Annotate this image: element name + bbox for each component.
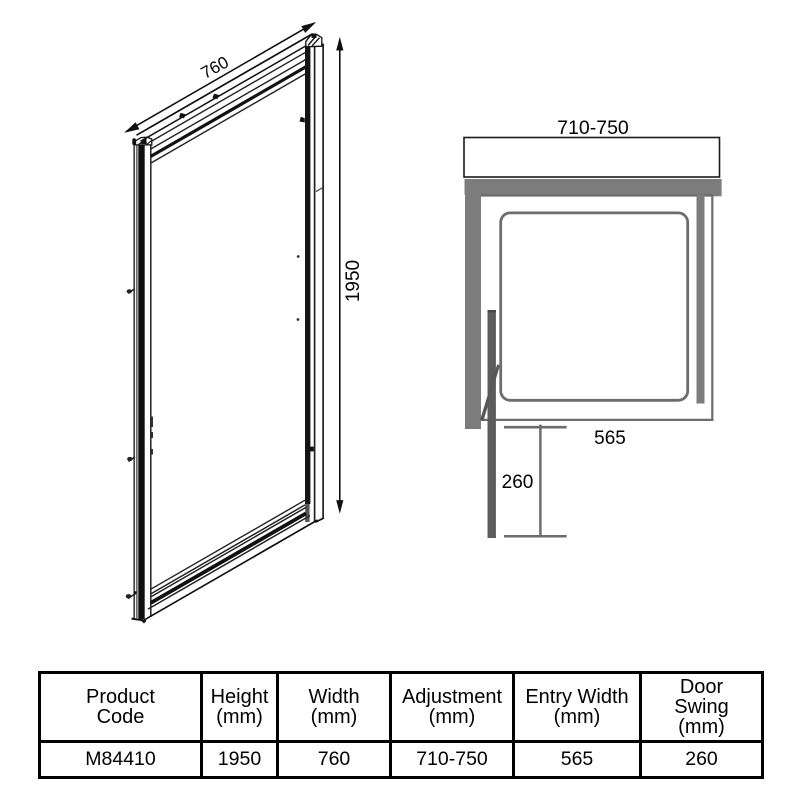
svg-text:710-750: 710-750 [557, 117, 629, 139]
svg-text:760: 760 [198, 53, 232, 83]
svg-text:1950: 1950 [343, 260, 364, 302]
svg-text:565: 565 [594, 428, 626, 449]
svg-text:260: 260 [502, 472, 534, 493]
